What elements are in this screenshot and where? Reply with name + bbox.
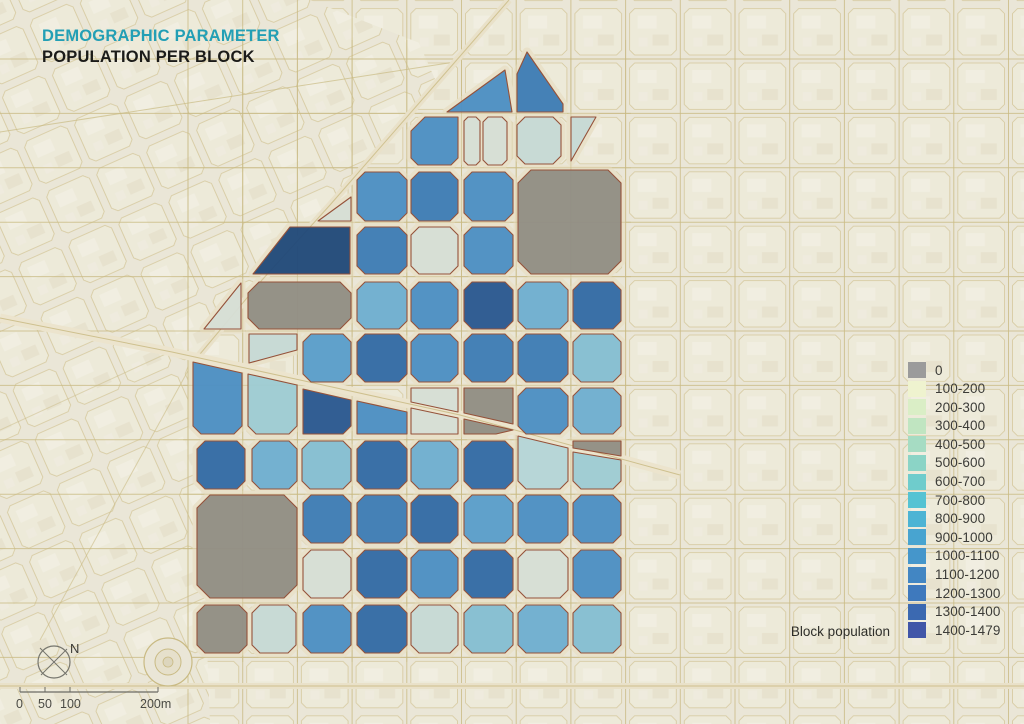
legend-label: 300-400 bbox=[935, 418, 985, 433]
legend-label: 1100-1200 bbox=[935, 567, 999, 582]
map-block bbox=[573, 495, 621, 543]
legend-swatch bbox=[908, 381, 926, 397]
legend-item: 500-600 bbox=[908, 455, 1000, 471]
legend-item: 600-700 bbox=[908, 474, 1000, 490]
map-block bbox=[517, 117, 561, 164]
legend-label: 0 bbox=[935, 363, 943, 378]
scale-label-0: 0 bbox=[16, 697, 23, 711]
legend-swatch bbox=[908, 418, 926, 434]
map-block bbox=[303, 605, 351, 653]
map-block bbox=[411, 172, 458, 221]
map-block bbox=[252, 605, 296, 653]
legend-item: 1400-1479 bbox=[908, 622, 1000, 638]
map-block bbox=[518, 282, 568, 329]
legend-swatch bbox=[908, 529, 926, 545]
roundabout bbox=[144, 638, 192, 686]
legend-swatch bbox=[908, 567, 926, 583]
map-block bbox=[518, 170, 621, 274]
legend-label: 800-900 bbox=[935, 511, 985, 526]
legend-swatch bbox=[908, 585, 926, 601]
scale-label-100: 100 bbox=[60, 697, 81, 711]
legend-item: 800-900 bbox=[908, 511, 1000, 527]
map-block bbox=[303, 550, 351, 598]
map-block bbox=[197, 605, 247, 653]
map-block bbox=[573, 550, 621, 598]
map-block bbox=[357, 334, 407, 382]
legend-label: 700-800 bbox=[935, 493, 985, 508]
map-block bbox=[573, 334, 621, 382]
legend-item: 1100-1200 bbox=[908, 567, 1000, 583]
legend-item: 200-300 bbox=[908, 399, 1000, 415]
map-block bbox=[518, 388, 568, 434]
compass-label: N bbox=[70, 641, 79, 656]
legend-swatch bbox=[908, 399, 926, 415]
legend-swatch bbox=[908, 474, 926, 490]
legend: 0100-200200-300300-400400-500500-600600-… bbox=[908, 362, 1000, 641]
map-block bbox=[303, 334, 351, 382]
map-block bbox=[303, 495, 351, 543]
map-block bbox=[411, 550, 458, 598]
map-block bbox=[357, 495, 407, 543]
legend-label: 500-600 bbox=[935, 455, 985, 470]
scale-label-200: 200m bbox=[140, 697, 171, 711]
map-block bbox=[464, 117, 480, 165]
map-block bbox=[411, 117, 458, 165]
map-block bbox=[197, 495, 297, 598]
legend-item: 300-400 bbox=[908, 418, 1000, 434]
map-block bbox=[411, 495, 458, 543]
map-block bbox=[464, 441, 513, 489]
map-block bbox=[357, 441, 407, 489]
map-block bbox=[411, 334, 458, 382]
map-block bbox=[411, 605, 458, 653]
map-block bbox=[357, 227, 407, 274]
title-parameter: DEMOGRAPHIC PARAMETER bbox=[42, 26, 280, 47]
title-subject: POPULATION PER BLOCK bbox=[42, 47, 280, 68]
map-block bbox=[411, 441, 458, 489]
map-title: DEMOGRAPHIC PARAMETER POPULATION PER BLO… bbox=[42, 26, 280, 68]
map-block bbox=[411, 227, 458, 274]
legend-caption: Block population bbox=[758, 624, 890, 639]
legend-label: 1400-1479 bbox=[935, 623, 1000, 638]
legend-swatch bbox=[908, 436, 926, 452]
legend-item: 1300-1400 bbox=[908, 604, 1000, 620]
legend-item: 700-800 bbox=[908, 492, 1000, 508]
legend-label: 600-700 bbox=[935, 474, 985, 489]
map-block bbox=[518, 550, 568, 598]
map-block bbox=[518, 495, 568, 543]
map-block bbox=[464, 227, 513, 274]
map-canvas: N 0 50 100 200m DEMOGRAPHIC PARAMETER PO… bbox=[0, 0, 1024, 724]
map-block bbox=[357, 550, 407, 598]
legend-label: 1200-1300 bbox=[935, 586, 1000, 601]
legend-label: 100-200 bbox=[935, 381, 985, 396]
map-block bbox=[197, 441, 245, 489]
legend-label: 200-300 bbox=[935, 400, 985, 415]
map-block bbox=[411, 282, 458, 329]
legend-swatch bbox=[908, 548, 926, 564]
map-block bbox=[464, 172, 513, 221]
legend-item: 400-500 bbox=[908, 436, 1000, 452]
legend-label: 1000-1100 bbox=[935, 548, 999, 563]
legend-item: 100-200 bbox=[908, 381, 1000, 397]
legend-swatch bbox=[908, 604, 926, 620]
map-block bbox=[464, 495, 513, 543]
map-block bbox=[193, 362, 242, 434]
map-block bbox=[357, 172, 407, 221]
map-block bbox=[518, 334, 568, 382]
legend-label: 1300-1400 bbox=[935, 604, 1000, 619]
map-block bbox=[464, 605, 513, 653]
map-block bbox=[357, 605, 407, 653]
legend-item: 0 bbox=[908, 362, 1000, 378]
legend-label: 900-1000 bbox=[935, 530, 993, 545]
legend-item: 1200-1300 bbox=[908, 585, 1000, 601]
legend-swatch bbox=[908, 622, 926, 638]
map-block bbox=[302, 441, 351, 489]
map-block bbox=[464, 282, 513, 329]
scale-label-50: 50 bbox=[38, 697, 52, 711]
map-block bbox=[357, 282, 407, 329]
legend-swatch bbox=[908, 511, 926, 527]
map-block bbox=[573, 388, 621, 434]
legend-swatch bbox=[908, 362, 926, 378]
legend-label: 400-500 bbox=[935, 437, 985, 452]
map-block bbox=[252, 441, 297, 489]
map-block bbox=[248, 282, 351, 329]
map-block bbox=[248, 374, 297, 434]
legend-item: 900-1000 bbox=[908, 529, 1000, 545]
legend-swatch bbox=[908, 492, 926, 508]
map-svg: N 0 50 100 200m bbox=[0, 0, 1024, 724]
map-block bbox=[483, 117, 507, 165]
legend-swatch bbox=[908, 455, 926, 471]
map-block bbox=[573, 282, 621, 329]
map-block bbox=[464, 550, 513, 598]
map-block bbox=[464, 334, 513, 382]
map-block bbox=[518, 605, 568, 653]
map-block bbox=[573, 605, 621, 653]
legend-item: 1000-1100 bbox=[908, 548, 1000, 564]
